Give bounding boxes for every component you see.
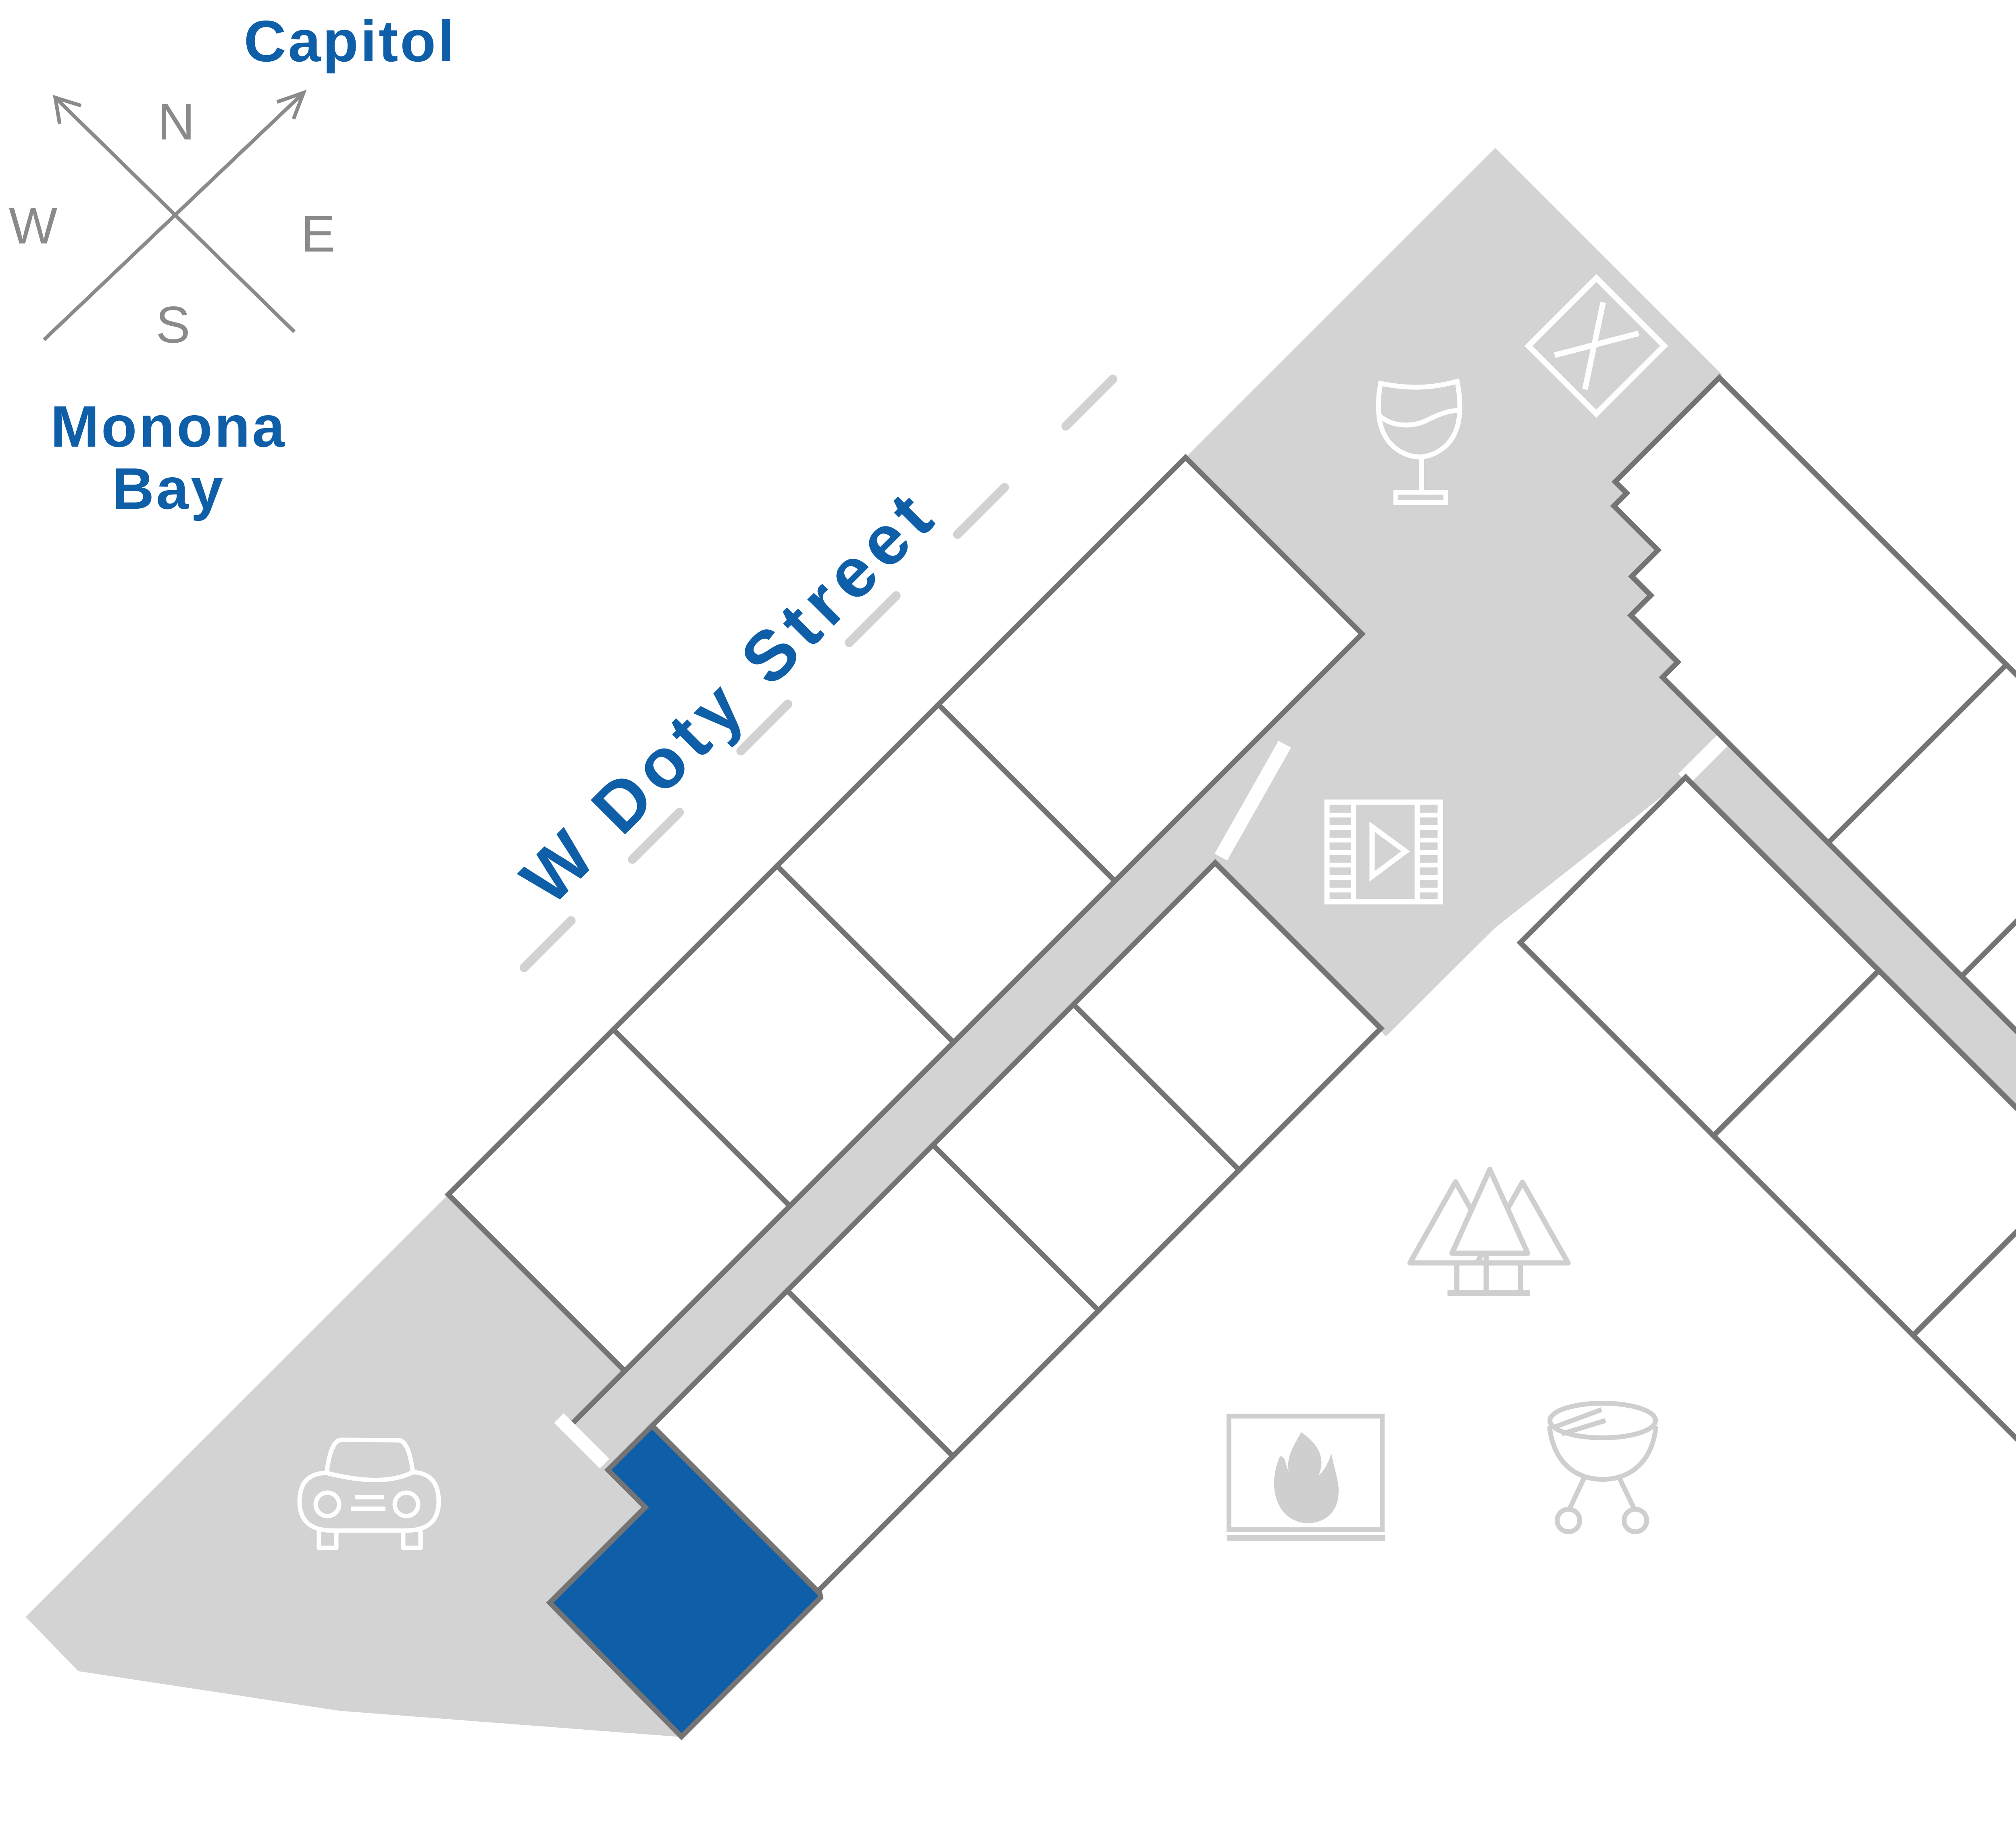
svg-text:Monona: Monona [50,394,287,459]
svg-text:Bay: Bay [112,456,225,521]
svg-text:S: S [156,296,190,354]
svg-text:Capitol: Capitol [244,8,456,74]
svg-text:E: E [301,205,335,263]
svg-text:W: W [9,197,58,255]
svg-text:N: N [158,93,195,151]
